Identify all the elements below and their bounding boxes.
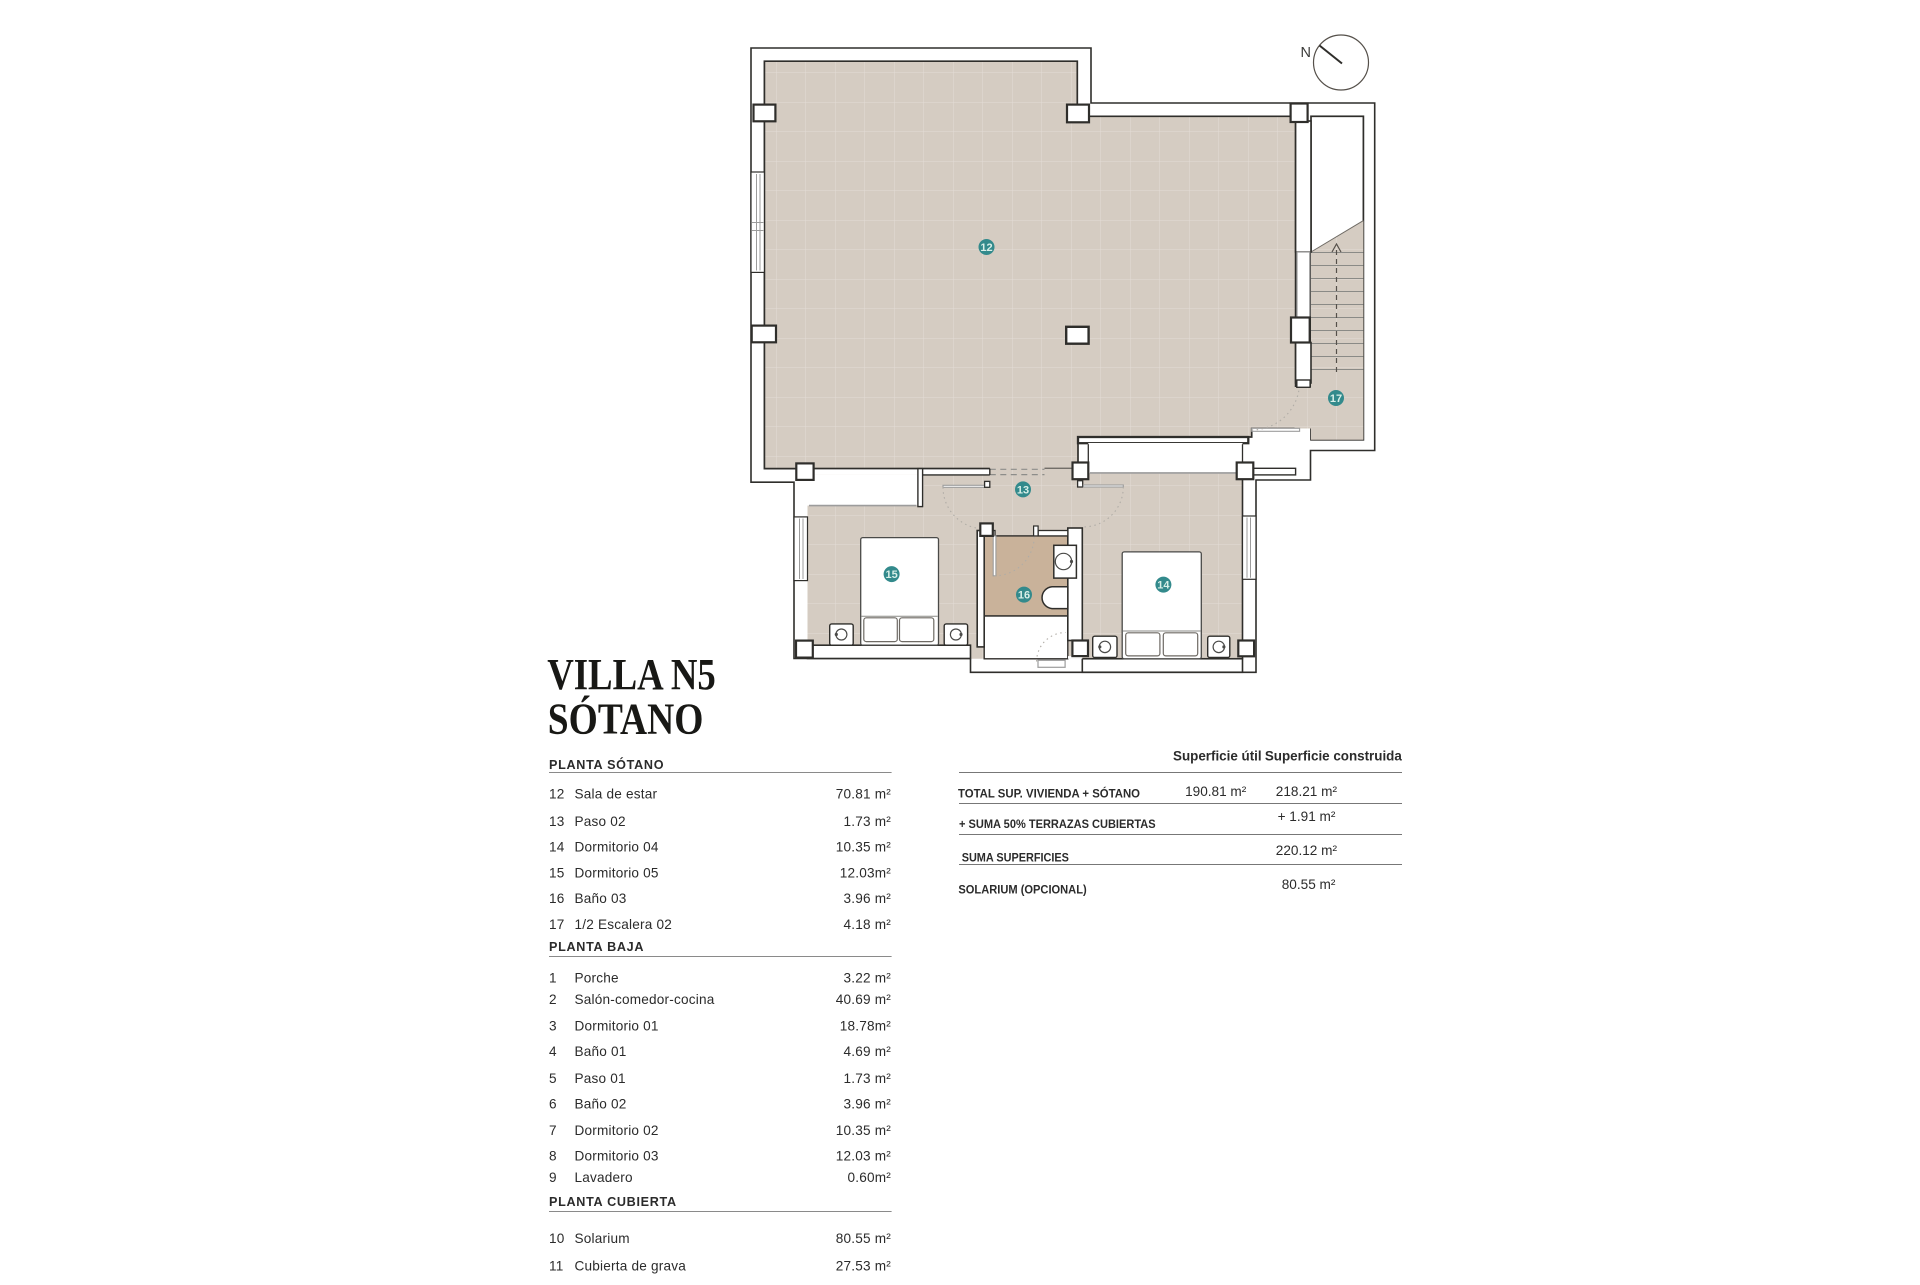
svg-text:PLANTA BAJA: PLANTA BAJA [549,940,644,954]
svg-text:3.96 m²: 3.96 m² [844,1096,892,1111]
svg-text:1.73 m²: 1.73 m² [844,1071,892,1086]
svg-text:70.81 m²: 70.81 m² [836,786,892,801]
svg-text:17: 17 [1330,393,1342,405]
svg-text:4.69 m²: 4.69 m² [844,1044,892,1059]
svg-text:Porche: Porche [575,971,619,986]
svg-text:SOLARIUM (OPCIONAL): SOLARIUM (OPCIONAL) [958,883,1086,897]
svg-text:11: 11 [549,1259,564,1274]
svg-text:+ 1.91 m²: + 1.91 m² [1278,809,1336,824]
svg-text:Lavadero: Lavadero [575,1170,633,1185]
svg-text:10.35 m²: 10.35 m² [836,1123,892,1138]
svg-text:Superficie construida: Superficie construida [1265,749,1402,764]
svg-text:15: 15 [549,865,565,880]
svg-text:0.60m²: 0.60m² [847,1170,891,1185]
svg-text:Baño 02: Baño 02 [575,1096,627,1111]
svg-text:18.78m²: 18.78m² [840,1018,892,1033]
svg-text:VILLA N5: VILLA N5 [547,650,716,699]
svg-text:Dormitorio 02: Dormitorio 02 [575,1123,659,1138]
svg-text:Dormitorio 03: Dormitorio 03 [575,1149,659,1164]
svg-text:+ SUMA 50% TERRAZAS CUBIERTAS: + SUMA 50% TERRAZAS CUBIERTAS [959,817,1156,831]
svg-text:1/2 Escalera 02: 1/2 Escalera 02 [575,917,672,932]
svg-text:190.81 m²: 190.81 m² [1185,784,1247,799]
svg-text:27.53 m²: 27.53 m² [836,1259,892,1274]
svg-text:12.03m²: 12.03m² [840,865,892,880]
svg-text:Baño 03: Baño 03 [575,891,627,906]
svg-text:1: 1 [549,971,557,986]
svg-text:40.69 m²: 40.69 m² [836,992,892,1007]
svg-text:3.22 m²: 3.22 m² [844,971,892,986]
svg-text:80.55 m²: 80.55 m² [1282,877,1336,892]
svg-text:10: 10 [549,1231,565,1246]
svg-text:80.55 m²: 80.55 m² [836,1231,892,1246]
svg-text:2: 2 [549,992,557,1007]
svg-text:220.12 m²: 220.12 m² [1276,843,1338,858]
svg-text:15: 15 [885,569,897,581]
svg-text:PLANTA SÓTANO: PLANTA SÓTANO [549,757,664,772]
svg-text:8: 8 [549,1149,557,1164]
svg-text:14: 14 [549,840,565,855]
svg-text:3: 3 [549,1018,557,1033]
svg-text:1.73 m²: 1.73 m² [844,814,892,829]
svg-text:13: 13 [549,814,565,829]
svg-text:PLANTA CUBIERTA: PLANTA CUBIERTA [549,1195,677,1209]
svg-text:SUMA SUPERFICIES: SUMA SUPERFICIES [962,851,1069,865]
svg-text:Salón-comedor-cocina: Salón-comedor-cocina [575,992,715,1007]
svg-text:12.03 m²: 12.03 m² [836,1149,892,1164]
svg-text:7: 7 [549,1123,557,1138]
svg-text:10.35 m²: 10.35 m² [836,840,892,855]
svg-text:Sala de estar: Sala de estar [575,786,658,801]
svg-text:14: 14 [1157,580,1170,592]
svg-text:Superficie útil: Superficie útil [1173,749,1262,764]
svg-text:Dormitorio 05: Dormitorio 05 [575,865,659,880]
svg-text:Cubierta de grava: Cubierta de grava [575,1259,687,1274]
svg-text:SÓTANO: SÓTANO [548,694,704,743]
svg-text:Paso 02: Paso 02 [575,814,626,829]
svg-text:3.96 m²: 3.96 m² [844,891,892,906]
svg-text:Baño 01: Baño 01 [575,1044,627,1059]
svg-text:6: 6 [549,1096,557,1111]
svg-text:9: 9 [549,1170,557,1185]
svg-text:17: 17 [549,917,565,932]
svg-text:16: 16 [1018,590,1030,602]
svg-text:4: 4 [549,1044,557,1059]
svg-text:16: 16 [549,891,565,906]
svg-text:12: 12 [549,786,565,801]
svg-text:218.21 m²: 218.21 m² [1276,784,1338,799]
svg-text:Dormitorio 01: Dormitorio 01 [575,1018,659,1033]
svg-text:N: N [1301,45,1311,61]
svg-text:13: 13 [1017,484,1029,496]
svg-text:Paso 01: Paso 01 [575,1071,626,1086]
svg-text:5: 5 [549,1071,557,1086]
svg-text:TOTAL SUP. VIVIENDA + SÓTANO: TOTAL SUP. VIVIENDA + SÓTANO [958,786,1140,801]
svg-text:Solarium: Solarium [575,1231,630,1246]
svg-text:12: 12 [980,242,992,254]
svg-text:4.18 m²: 4.18 m² [844,917,892,932]
svg-text:Dormitorio 04: Dormitorio 04 [575,840,659,855]
